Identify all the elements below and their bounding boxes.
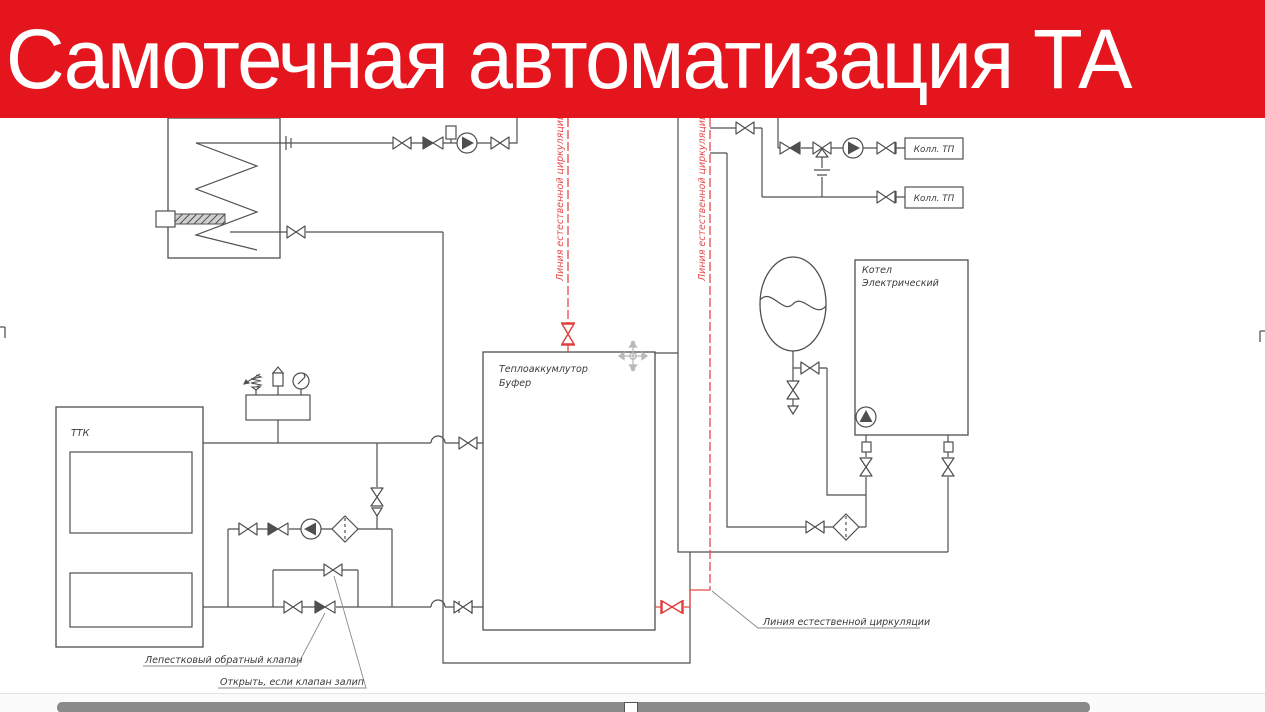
petal-check-valve-callout: Лепестковый обратный клапан (144, 655, 302, 666)
valve-icon (877, 191, 895, 203)
three-way-valve-icon (813, 142, 831, 157)
filter-icon (332, 516, 358, 542)
red-valve-icon (561, 323, 575, 345)
horizontal-scrollbar-track[interactable] (0, 693, 1265, 712)
bypass-valve-icon (324, 564, 342, 576)
scrollbar-handle[interactable] (624, 702, 638, 712)
petal-check-valve-icon (315, 601, 335, 613)
horizontal-scrollbar-thumb[interactable] (57, 702, 1090, 712)
check-valve-icon (780, 142, 800, 154)
valve-icon (877, 142, 895, 154)
valve-icon (801, 362, 819, 374)
valve-icon (371, 488, 383, 506)
drain-icon (372, 508, 382, 516)
title-banner: Самотечная автоматизация ТА (0, 0, 1265, 118)
open-if-stuck-callout: Открыть, если клапан залип (220, 677, 364, 688)
collector-2-label: Колл. ТП (914, 194, 955, 204)
page-title: Самотечная автоматизация ТА (0, 11, 1131, 108)
auto-vent-icon (446, 126, 456, 139)
red-valve-icon (661, 600, 683, 614)
natural-circulation-label-left: Линия естественной циркуляции (555, 114, 566, 282)
collector-1: Колл. ТП (905, 138, 963, 159)
check-valve-icon (268, 523, 288, 535)
boiler-label-2: Электрический (861, 278, 939, 289)
heating-element-rod (175, 214, 225, 224)
pipe-connector (944, 442, 953, 452)
valve-icon (454, 601, 472, 613)
pressure-gauge-icon (293, 373, 309, 389)
check-valve-icon (423, 137, 443, 149)
filter-icon (833, 514, 859, 540)
pipe-connector (862, 442, 871, 452)
valve-icon (284, 601, 302, 613)
safety-valve-icon (244, 374, 261, 390)
valve-icon (393, 137, 411, 149)
collector-2: Колл. ТП (905, 187, 963, 208)
valve-icon (736, 122, 754, 134)
valve-icon (942, 458, 954, 476)
valve-icon (239, 523, 257, 535)
ttk-boiler: ТТК (56, 407, 203, 647)
buffer-label-2: Буфер (499, 378, 531, 389)
boiler-pump-icon (856, 407, 876, 427)
buffer-tank: Теплоаккумлутор Буфер (483, 352, 655, 630)
pump-icon (301, 519, 321, 539)
boiler-label-1: Котел (862, 265, 892, 276)
valve-icon (491, 137, 509, 149)
drain-valve-icon (787, 381, 799, 399)
pump-icon (843, 138, 863, 158)
coil-tank (156, 118, 280, 258)
ttk-label: ТТК (71, 428, 91, 439)
collector-1-label: Колл. ТП (914, 145, 955, 155)
expansion-tank (760, 257, 826, 351)
valve-icon (806, 521, 824, 533)
natural-circulation-callout: Линия естественной циркуляции (762, 617, 930, 628)
valve-icon (459, 437, 477, 449)
drain-icon (788, 406, 798, 414)
air-vent-icon (273, 367, 283, 388)
pump-icon (457, 133, 477, 153)
heating-element-head (156, 211, 175, 227)
buffer-label-1: Теплоаккумлутор (499, 364, 588, 375)
safety-group (244, 367, 310, 420)
valve-icon (287, 226, 305, 238)
valve-icon (860, 458, 872, 476)
natural-circulation-label-right: Линия естественной циркуляции (697, 114, 708, 282)
app-window: ТТК Теплоаккумлутор Буфер Котел Электрич… (0, 0, 1265, 712)
